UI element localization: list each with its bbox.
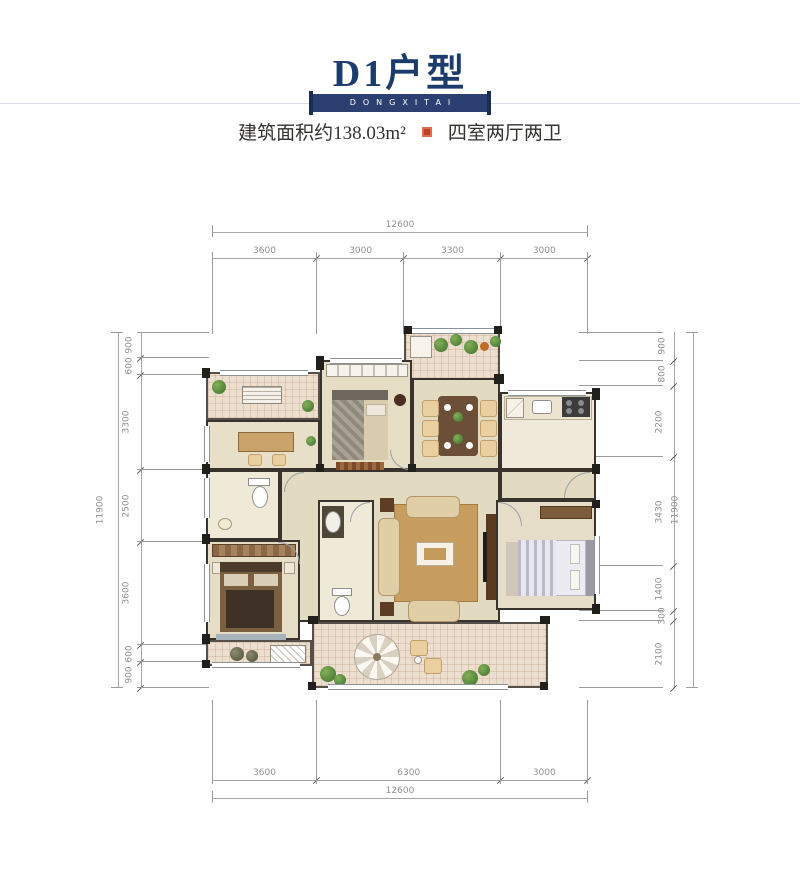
plant-icon bbox=[306, 436, 316, 446]
balcony-table-icon bbox=[410, 336, 432, 358]
burner-icon bbox=[566, 408, 572, 414]
room-dining bbox=[412, 378, 500, 470]
bed-headboard-icon bbox=[220, 562, 282, 572]
bed-duvet-icon bbox=[518, 540, 556, 596]
chair-icon bbox=[480, 400, 497, 417]
toilet-tank-icon bbox=[248, 478, 270, 486]
chair-icon bbox=[422, 440, 439, 457]
nightstand-lamp-icon bbox=[394, 394, 406, 406]
coffee-table-tray-icon bbox=[424, 548, 446, 560]
room-study bbox=[206, 420, 320, 470]
chair-icon bbox=[480, 420, 497, 437]
dimension-total-right: 11900 bbox=[678, 332, 694, 688]
plant-icon bbox=[434, 338, 448, 352]
room-living bbox=[280, 470, 500, 622]
unit-specs: 建筑面积约138.03m² 四室两厅两卫 bbox=[0, 118, 800, 145]
pillow-icon bbox=[570, 544, 580, 564]
plate-icon bbox=[444, 442, 451, 449]
wash-bowl-icon bbox=[218, 518, 232, 530]
bed-headboard-icon bbox=[332, 390, 388, 400]
chair-icon bbox=[272, 454, 286, 466]
wall-column bbox=[308, 616, 318, 624]
wash-basin-icon bbox=[325, 511, 341, 533]
banner-endcap-right bbox=[487, 91, 491, 115]
room-balcony-south bbox=[312, 622, 548, 688]
plant-icon bbox=[490, 336, 501, 347]
room-kitchen bbox=[500, 392, 596, 470]
wall-column bbox=[202, 368, 210, 378]
burner-icon bbox=[566, 400, 572, 406]
room-balcony-northeast bbox=[404, 330, 500, 380]
pillow-icon bbox=[570, 570, 580, 590]
sofa-icon bbox=[408, 600, 460, 622]
side-table-icon bbox=[380, 602, 394, 616]
wall-column bbox=[408, 464, 416, 472]
bed-throw-icon bbox=[226, 590, 274, 628]
window bbox=[204, 478, 210, 518]
brand-banner: DONGXITAI bbox=[312, 94, 488, 112]
chair-icon bbox=[480, 440, 497, 457]
area-label: 建筑面积约138.03m² bbox=[238, 118, 406, 145]
plant-icon bbox=[230, 647, 244, 661]
brand-name: DONGXITAI bbox=[312, 94, 488, 112]
plant-icon bbox=[302, 400, 314, 412]
room-bathroom-1 bbox=[206, 470, 280, 540]
dimension-total-bottom: 12600 bbox=[212, 784, 588, 799]
plant-icon bbox=[246, 650, 258, 662]
room-balcony-northwest bbox=[206, 372, 320, 420]
pillow-icon bbox=[254, 574, 278, 586]
tv-icon bbox=[483, 532, 487, 582]
dimension-total-top: 12600 bbox=[212, 218, 588, 233]
sofa-icon bbox=[406, 496, 460, 518]
chair-icon bbox=[248, 454, 262, 466]
burner-icon bbox=[578, 408, 584, 414]
kitchen-sink-icon bbox=[532, 400, 552, 414]
pillow-icon bbox=[224, 574, 248, 586]
plate-icon bbox=[466, 442, 473, 449]
ac-unit-icon bbox=[242, 386, 282, 404]
wall-column bbox=[202, 464, 210, 474]
wall-column bbox=[202, 634, 210, 644]
burner-icon bbox=[578, 400, 584, 406]
wall-column bbox=[316, 464, 324, 472]
side-table-icon bbox=[380, 498, 394, 512]
dimension-ruler-top: 3600300033003000 bbox=[212, 244, 588, 259]
window bbox=[204, 564, 210, 622]
wardrobe-icon bbox=[540, 506, 592, 519]
wall-column bbox=[202, 534, 210, 544]
sofa-icon bbox=[378, 518, 400, 596]
plant-icon bbox=[453, 412, 463, 422]
wall-column bbox=[202, 660, 210, 668]
plant-icon bbox=[464, 340, 478, 354]
wardrobe-icon bbox=[326, 364, 408, 377]
wall-column bbox=[404, 326, 412, 334]
toilet-tank-icon bbox=[332, 588, 352, 596]
bed-duvet-icon bbox=[332, 400, 364, 460]
teapot-icon bbox=[414, 656, 422, 664]
parasol-table-icon bbox=[354, 634, 400, 680]
seal-icon bbox=[422, 127, 432, 137]
tv-cabinet-icon bbox=[486, 514, 496, 600]
toilet-icon bbox=[252, 486, 268, 508]
wall-column bbox=[592, 500, 600, 508]
chair-icon bbox=[422, 400, 439, 417]
pillow-icon bbox=[366, 404, 386, 416]
wall-column bbox=[494, 374, 504, 384]
wall-column bbox=[540, 682, 548, 690]
plate-icon bbox=[444, 404, 451, 411]
unit-title: D1户型 bbox=[0, 42, 800, 97]
fridge-icon bbox=[506, 398, 524, 418]
chair-icon bbox=[424, 658, 442, 674]
dimension-total-left: 11900 bbox=[103, 332, 119, 688]
floor-plan bbox=[204, 326, 600, 690]
wall-column bbox=[592, 464, 600, 474]
toilet-icon bbox=[334, 596, 350, 616]
window bbox=[508, 390, 586, 396]
plant-icon bbox=[478, 664, 490, 676]
wall-column bbox=[316, 356, 324, 370]
wall-column bbox=[308, 682, 316, 690]
dimension-ruler-left: 900600330025003600600900 bbox=[126, 332, 142, 688]
wall-column bbox=[540, 616, 550, 624]
window bbox=[330, 358, 402, 364]
window bbox=[594, 536, 600, 594]
bed-headboard-icon bbox=[586, 540, 594, 596]
dimension-ruler-bottom: 360063003000 bbox=[212, 766, 588, 781]
desk-icon bbox=[238, 432, 294, 452]
chair-icon bbox=[422, 420, 439, 437]
layout-label: 四室两厅两卫 bbox=[448, 118, 562, 145]
banner-endcap-left bbox=[309, 91, 313, 115]
chair-icon bbox=[410, 640, 428, 656]
window bbox=[212, 662, 300, 668]
floorplan-page: D1户型 DONGXITAI 建筑面积约138.03m² 四室两厅两卫 1260… bbox=[0, 0, 800, 887]
wall-column bbox=[592, 388, 600, 400]
plant-icon bbox=[212, 380, 226, 394]
plant-icon bbox=[453, 434, 463, 444]
window bbox=[328, 684, 508, 690]
plate-icon bbox=[466, 404, 473, 411]
wall-column bbox=[494, 326, 502, 334]
plant-icon bbox=[450, 334, 462, 346]
window bbox=[220, 370, 308, 376]
bed-bench-icon bbox=[336, 462, 384, 470]
wall-column bbox=[592, 604, 600, 614]
window bbox=[204, 426, 210, 462]
window bbox=[412, 328, 494, 334]
plant-pot-icon bbox=[480, 342, 489, 351]
ac-unit-icon bbox=[270, 645, 306, 663]
